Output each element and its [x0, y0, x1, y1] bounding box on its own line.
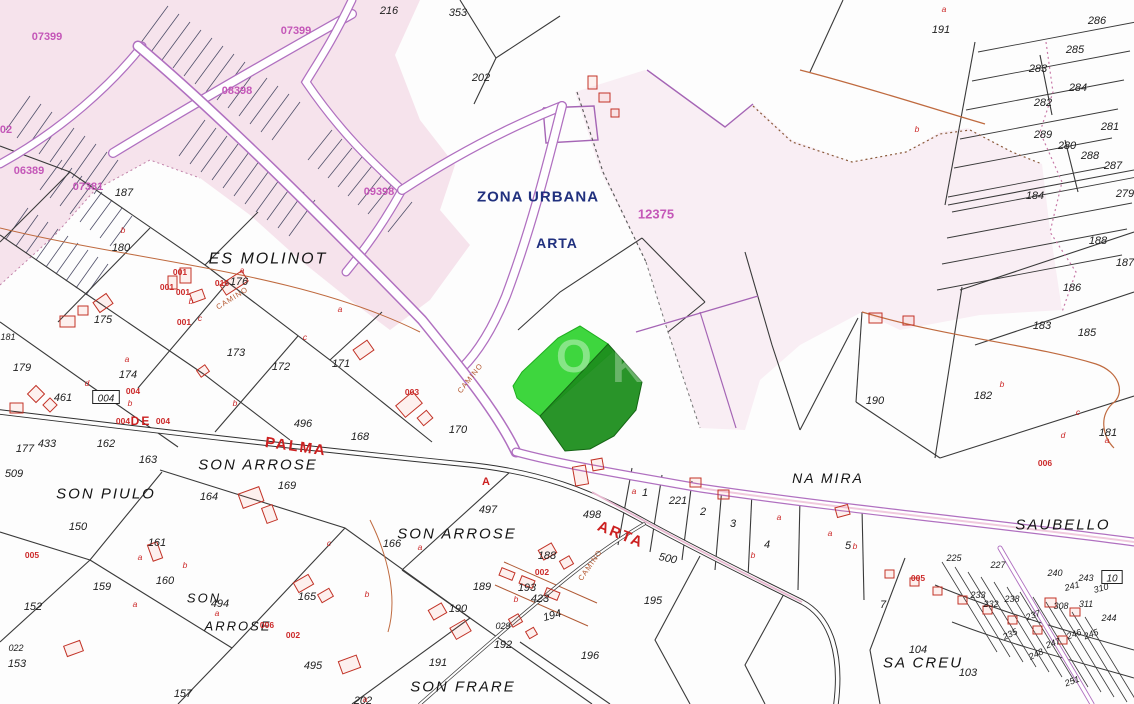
- parcel-number: 285: [1065, 44, 1085, 56]
- subparcel-letter: a: [418, 542, 423, 552]
- subparcel-letter: a: [215, 608, 220, 618]
- subparcel-letter: b: [183, 560, 188, 570]
- highlighted-parcel[interactable]: OK: [513, 326, 645, 451]
- block-code: 08398: [222, 85, 253, 97]
- building-footprint: [690, 478, 701, 487]
- watermark-letter: K: [612, 340, 645, 392]
- parcel-number: 498: [583, 509, 602, 521]
- building-footprint: [238, 487, 264, 509]
- boundary-line: [370, 520, 392, 632]
- parcel-number: 173: [227, 347, 246, 359]
- parcel-number: 280: [1057, 140, 1077, 152]
- parcel-number: 243: [1077, 573, 1093, 583]
- boundary-line: [856, 402, 940, 458]
- subparcel-letter: c: [198, 313, 203, 323]
- building-code: 006: [1038, 458, 1052, 468]
- boundary-line: [748, 492, 752, 578]
- boundary-line: [856, 312, 862, 402]
- subparcel-letter: a: [1105, 435, 1110, 445]
- parcel-number: 308: [1053, 601, 1068, 611]
- subparcel-letter: a: [828, 528, 833, 538]
- subparcel-letter: a: [632, 486, 637, 496]
- zone-label: ARTA: [536, 235, 578, 251]
- parcel-number: 4: [764, 539, 770, 551]
- strip-parcel-line: [972, 51, 1130, 81]
- parcel-number: 251: [1062, 674, 1080, 689]
- parcel-number: 5: [845, 540, 852, 552]
- parcel-number: 461: [54, 392, 72, 404]
- subparcel-letter: b: [751, 550, 756, 560]
- parcel-number: 187: [115, 187, 134, 199]
- road-label: A: [482, 476, 492, 488]
- parcel-number: 196: [581, 650, 600, 662]
- building-footprint: [28, 386, 45, 403]
- boundary-line: [745, 592, 785, 704]
- place-name: SAUBELLO: [1015, 516, 1110, 533]
- block-code: 12375: [638, 207, 674, 222]
- parcel-number: 181: [0, 332, 15, 342]
- parcel-number: 161: [148, 537, 166, 549]
- parcel-number: 497: [479, 504, 498, 516]
- parcel-number: 103: [959, 667, 978, 679]
- parcel-number: 182: [974, 390, 992, 402]
- building-footprint: [1033, 626, 1042, 634]
- building-footprint: [78, 306, 88, 315]
- parcel-number: 194: [542, 608, 563, 624]
- parcel-number: 152: [24, 601, 42, 613]
- parcel-number: 225: [945, 553, 962, 563]
- parcel-number: 509: [5, 468, 23, 480]
- subparcel-letter: a: [777, 512, 782, 522]
- parcel-number: 246: [1064, 627, 1082, 642]
- parcel-number: 494: [211, 598, 229, 610]
- subparcel-letter: a: [942, 4, 947, 14]
- building-footprint: [197, 365, 210, 377]
- building-code: 005: [25, 550, 39, 560]
- building-footprint: [611, 109, 619, 117]
- building-footprint: [903, 316, 914, 325]
- building-footprint: [338, 655, 360, 674]
- subparcel-letter: a: [240, 265, 245, 275]
- building-code: 016: [215, 278, 229, 288]
- urban-area: [575, 70, 1062, 430]
- parcel-number: 232: [982, 599, 998, 609]
- subparcel-letter: c: [1076, 407, 1081, 417]
- parcel-number: 177: [16, 443, 35, 455]
- boundary-line: [402, 472, 510, 570]
- building-code: 004: [126, 386, 140, 396]
- block-code: 07399: [281, 25, 312, 37]
- parcel-number: 221: [668, 495, 687, 507]
- parcel-number: 175: [94, 314, 113, 326]
- subparcel-letter: a: [138, 552, 143, 562]
- parcel-number: 244: [1100, 613, 1116, 623]
- block-code: 06389: [14, 165, 45, 177]
- building-footprint: [293, 574, 313, 592]
- parcel-number: 227: [989, 560, 1006, 570]
- building-footprint: [1070, 608, 1080, 616]
- boundary-line: [798, 498, 800, 590]
- building-footprint: [588, 76, 597, 89]
- building-code: 004: [156, 416, 170, 426]
- subparcel-letter: b: [365, 589, 370, 599]
- parcel-number: 157: [174, 688, 193, 700]
- subparcel-letter: b: [128, 398, 133, 408]
- parcel-number: 166: [383, 538, 402, 550]
- parcel-number: 190: [866, 395, 885, 407]
- zone-label: ZONA URBANA: [477, 188, 599, 205]
- parcel-number: 353: [449, 7, 468, 19]
- parcel-number-boxed: 004: [98, 394, 115, 405]
- building-footprint: [417, 410, 433, 425]
- building-footprint: [869, 313, 882, 323]
- building-footprint: [958, 596, 967, 604]
- block-code: 02: [0, 124, 12, 136]
- building-footprint: [450, 620, 471, 640]
- building-footprint: [428, 603, 446, 620]
- parcel-number: 7: [880, 599, 887, 611]
- parcel-number: 159: [93, 581, 111, 593]
- parcel-number: 104: [909, 644, 927, 656]
- parcel-number: 286: [1087, 15, 1107, 27]
- boundary-line: [0, 560, 90, 642]
- boundary-line: [862, 508, 864, 600]
- building-footprint: [1008, 616, 1017, 624]
- parcel-number: 179: [13, 362, 31, 374]
- parcel-number: 163: [139, 454, 158, 466]
- building-code: 001: [160, 282, 174, 292]
- block-code: 07399: [32, 31, 63, 43]
- parcel-number: 188: [538, 550, 557, 562]
- parcel-number: 284: [1068, 82, 1087, 94]
- building-footprint: [10, 403, 23, 413]
- subparcel-letter: b: [853, 541, 858, 551]
- parcel-number: 150: [69, 521, 88, 533]
- building-code: 002: [286, 630, 300, 640]
- building-footprint: [718, 490, 729, 499]
- boundary-line: [800, 70, 985, 124]
- boundary-line: [460, 0, 560, 58]
- parcel-number: 183: [1033, 320, 1052, 332]
- parcel-number: 423: [531, 593, 550, 605]
- block-code: 07381: [73, 181, 104, 193]
- parcel-number: 495: [304, 660, 323, 672]
- parcel-number: 185: [1078, 327, 1097, 339]
- parcel-number: 188: [1089, 235, 1108, 247]
- parcel-number: 187: [1116, 257, 1134, 269]
- place-name: SON ARROSE: [198, 456, 317, 473]
- place-name: NA MIRA: [792, 470, 864, 486]
- parcel-number: 186: [1063, 282, 1082, 294]
- boundary-line: [138, 282, 228, 388]
- boundary-line: [178, 528, 345, 704]
- block-code: 09398: [364, 186, 395, 198]
- boundary-line: [870, 558, 905, 704]
- building-footprint: [262, 505, 278, 524]
- place-name: SON ARROSE: [397, 525, 516, 542]
- building-footprint: [499, 568, 515, 581]
- boundary-line: [700, 488, 1134, 542]
- parcel-number: 029: [495, 621, 510, 631]
- boundary-line: [810, 0, 843, 72]
- parcel-number: 192: [494, 639, 512, 651]
- watermark-letter: O: [556, 330, 592, 382]
- building-code: 006: [260, 620, 274, 630]
- parcel-number: 191: [429, 657, 447, 669]
- building-code: 001: [173, 267, 187, 277]
- subparcel-letter: b: [189, 296, 194, 306]
- parcel-number: 3: [730, 518, 737, 530]
- parcel-number: 2: [699, 506, 706, 518]
- subparcel-letter: d: [1061, 430, 1066, 440]
- subparcel-letter: a: [363, 694, 368, 704]
- strip-parcel-line: [978, 22, 1134, 52]
- parcel-number: 165: [298, 591, 317, 603]
- parcel-number: 171: [332, 358, 350, 370]
- boundary-line: [650, 475, 662, 552]
- parcel-number: 1: [642, 487, 648, 499]
- parcel-number: 169: [278, 480, 296, 492]
- cadastral-map: OK0739907399083980638907381093981237502Z…: [0, 0, 1134, 704]
- subparcel-letter: a: [125, 354, 130, 364]
- subparcel-letter: d: [85, 378, 90, 388]
- subparcel-letter: b: [915, 124, 920, 134]
- parcel-number: 164: [200, 491, 218, 503]
- road-name-small: CAMINO: [576, 548, 604, 583]
- parcel-number: 287: [1103, 160, 1123, 172]
- parcel-number: 279: [1115, 188, 1134, 200]
- parcel-number: 160: [156, 575, 175, 587]
- place-name: ES MOLINOT: [209, 251, 328, 268]
- subparcel-letter: b: [1000, 379, 1005, 389]
- building-code: 002: [535, 567, 549, 577]
- parcel-number: 216: [379, 5, 399, 17]
- parcel-number: 248: [1026, 646, 1045, 662]
- building-footprint: [64, 640, 84, 656]
- building-code: 004: [116, 416, 130, 426]
- road-surface: [0, 412, 838, 704]
- parcel-number: 172: [272, 361, 290, 373]
- parcel-number: 500: [658, 551, 679, 567]
- parcel-number: 153: [8, 658, 27, 670]
- parcel-number: 289: [1033, 129, 1052, 141]
- parcel-number: 202: [471, 72, 490, 84]
- subparcel-letter: b: [121, 225, 126, 235]
- road-label: ARTA: [595, 518, 646, 552]
- parcel-number: 176: [230, 276, 249, 288]
- building-footprint: [933, 587, 942, 595]
- building-footprint: [318, 588, 334, 602]
- parcel-number: 238: [1003, 594, 1019, 604]
- boundary-line: [518, 238, 642, 330]
- building-footprint: [60, 316, 75, 327]
- parcel-number: 288: [1080, 150, 1100, 162]
- parcel-number: 189: [473, 581, 491, 593]
- place-name: SA CREU: [883, 654, 963, 671]
- parcel-number: 195: [644, 595, 663, 607]
- subparcel-letter: a: [338, 304, 343, 314]
- place-name: SON PIULO: [56, 485, 156, 502]
- building-footprint: [559, 556, 573, 569]
- parcel-number: 191: [932, 24, 950, 36]
- parcel-number: 283: [1028, 63, 1048, 75]
- parcel-number: 281: [1100, 121, 1119, 133]
- parcel-number: 190: [449, 603, 468, 615]
- building-code: 001: [177, 317, 191, 327]
- subparcel-letter: b: [233, 398, 238, 408]
- building-code: 003: [405, 387, 419, 397]
- subparcel-letter: b: [514, 594, 519, 604]
- building-footprint: [572, 465, 588, 486]
- boundary-line: [655, 556, 700, 704]
- parcel-number: 311: [1079, 599, 1093, 609]
- parcel-number: 240: [1046, 568, 1062, 578]
- parcel-number: 184: [1026, 190, 1044, 202]
- parcel-number: 174: [119, 369, 137, 381]
- building-footprint: [599, 93, 610, 102]
- parcel-number-boxed: 10: [1106, 574, 1118, 585]
- cadastral-map-viewport: OK0739907399083980638907381093981237502Z…: [0, 0, 1134, 704]
- building-footprint: [526, 627, 538, 638]
- place-name: SON FRARE: [410, 678, 516, 695]
- building-footprint: [885, 570, 894, 578]
- parcel-number: 282: [1033, 97, 1052, 109]
- parcel-number: 170: [449, 424, 468, 436]
- subparcel-letter: c: [303, 332, 308, 342]
- parcel-number: 433: [38, 438, 57, 450]
- building-code: 005: [911, 573, 925, 583]
- parcel-number: 022: [8, 643, 23, 653]
- parcel-number: 180: [112, 242, 131, 254]
- parcel-number: 496: [294, 418, 313, 430]
- subparcel-letter: a: [133, 599, 138, 609]
- building-footprint: [353, 340, 374, 360]
- building-footprint: [591, 458, 604, 471]
- road-label: DE: [131, 414, 152, 428]
- parcel-number: 168: [351, 431, 370, 443]
- parcel-number: 162: [97, 438, 115, 450]
